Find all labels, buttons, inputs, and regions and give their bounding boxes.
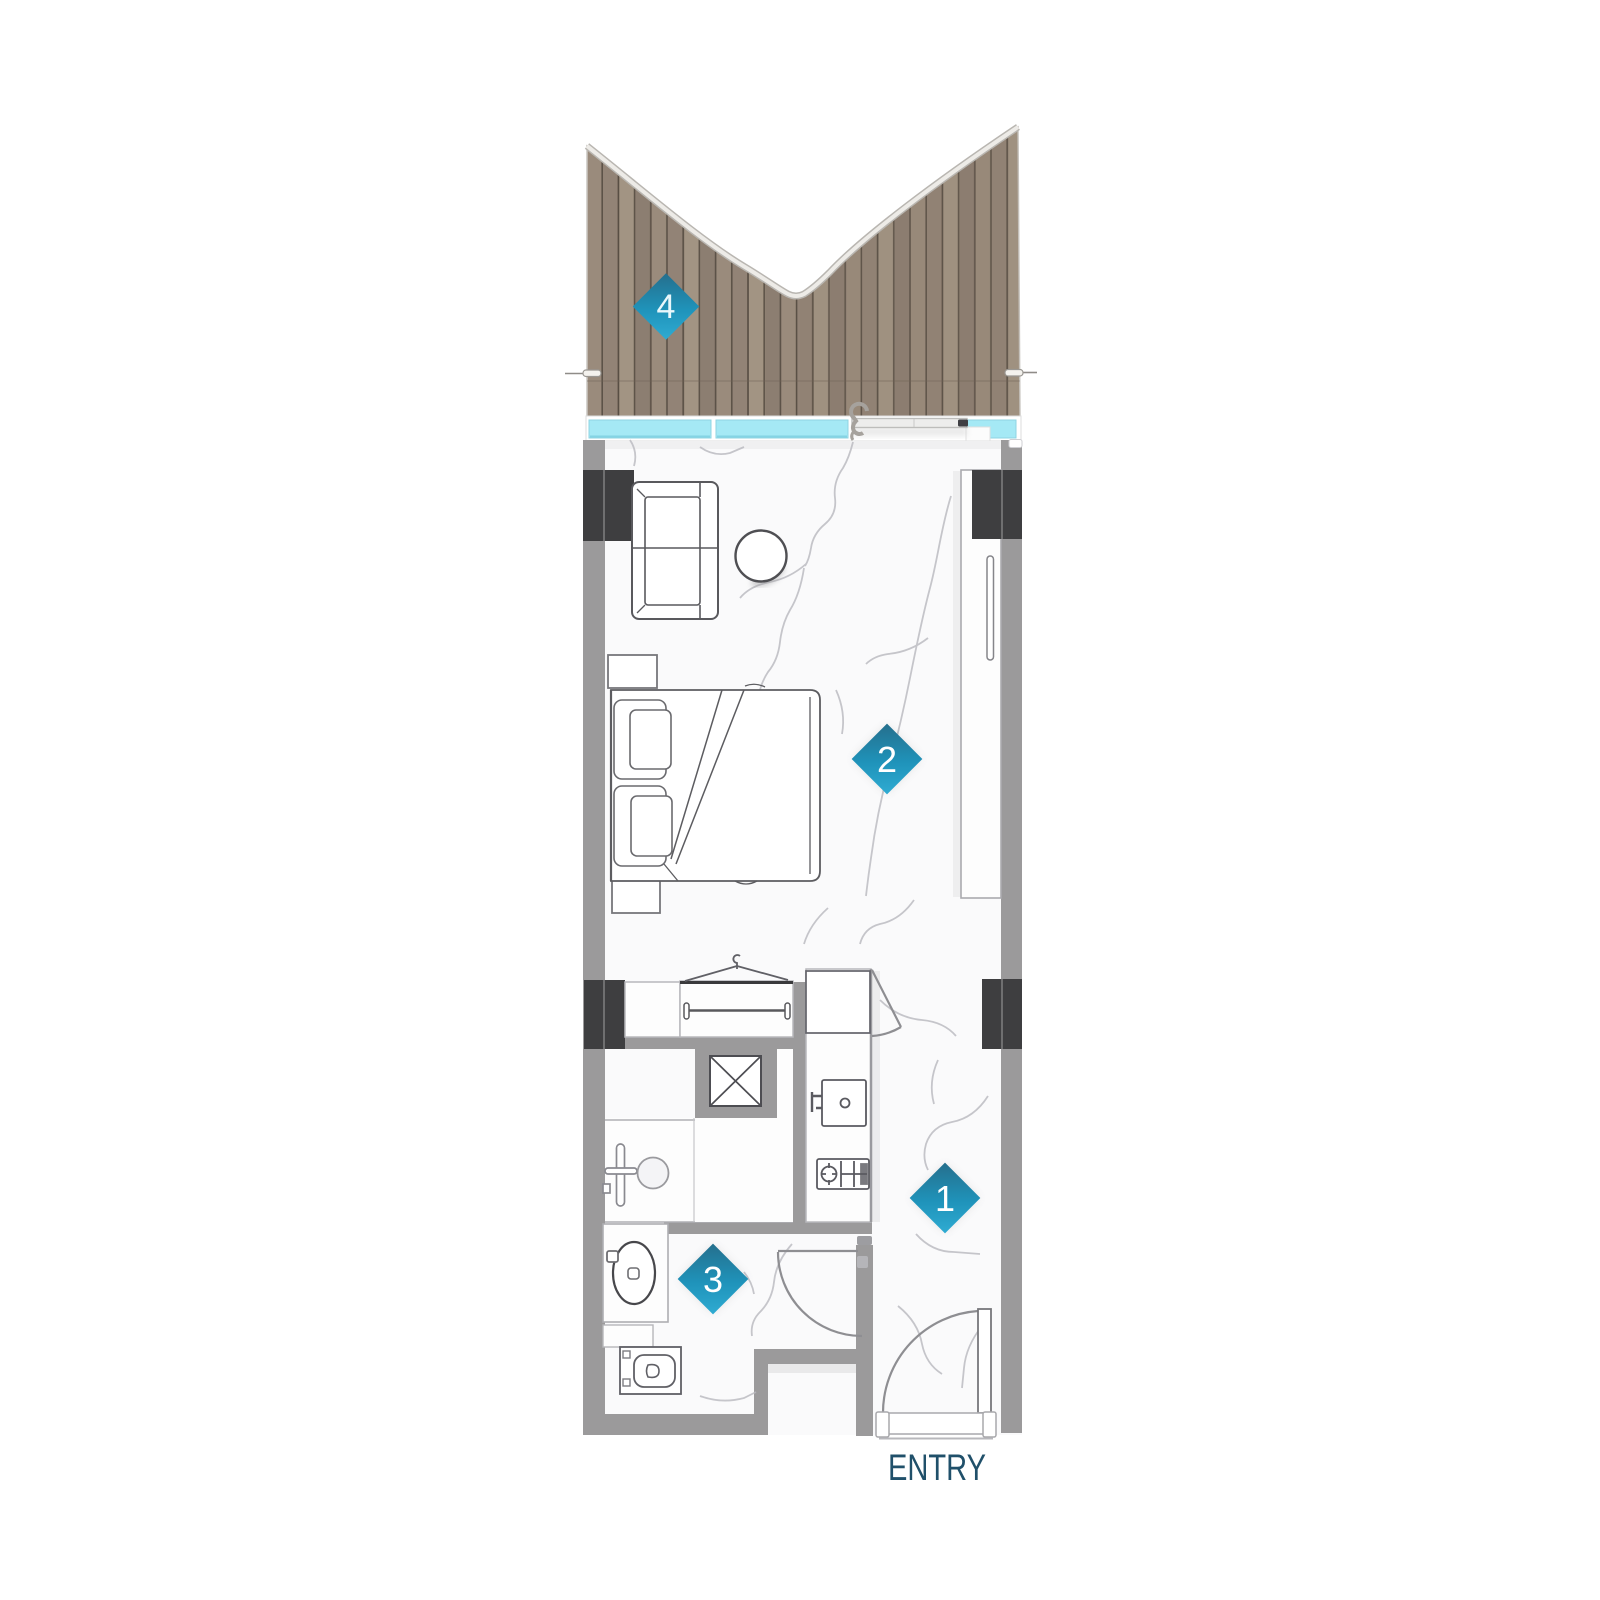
svg-text:2: 2 bbox=[877, 739, 897, 780]
svg-text:4: 4 bbox=[657, 288, 676, 326]
svg-text:3: 3 bbox=[703, 1259, 723, 1300]
svg-text:1: 1 bbox=[935, 1178, 955, 1219]
svg-text:ENTRY: ENTRY bbox=[888, 1447, 986, 1488]
